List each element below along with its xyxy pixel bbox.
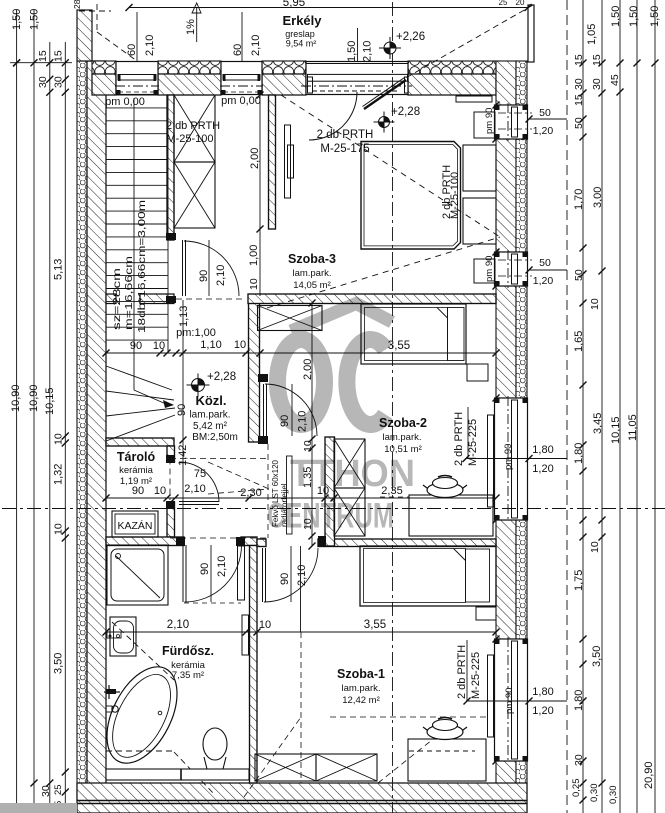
svg-text:45: 45: [609, 74, 621, 86]
svg-text:M-25-175: M-25-175: [320, 143, 369, 155]
svg-text:lam.park.: lam.park.: [341, 683, 380, 694]
svg-text:lam.park.: lam.park.: [292, 268, 331, 279]
svg-text:2 db PRTH: 2 db PRTH: [453, 412, 465, 466]
svg-text:2 db PRTH: 2 db PRTH: [456, 645, 468, 699]
svg-text:BM:2,50m: BM:2,50m: [192, 432, 238, 443]
svg-text:18db*16,66cm=3,00m: 18db*16,66cm=3,00m: [136, 200, 148, 333]
svg-text:0,30: 0,30: [608, 786, 619, 805]
svg-text:2,10: 2,10: [362, 41, 374, 62]
svg-text:2,10: 2,10: [184, 483, 205, 495]
svg-text:1,50: 1,50: [628, 6, 640, 27]
svg-text:pm 90: pm 90: [484, 108, 495, 134]
svg-text:10: 10: [302, 440, 314, 452]
svg-text:90: 90: [132, 485, 144, 497]
svg-text:15: 15: [53, 50, 65, 62]
svg-text:28: 28: [72, 0, 82, 9]
svg-text:90: 90: [279, 573, 291, 585]
svg-text:25: 25: [499, 0, 508, 7]
svg-text:60: 60: [126, 44, 138, 56]
svg-text:30: 30: [37, 76, 49, 88]
svg-text:pm 90: pm 90: [503, 444, 514, 470]
svg-text:60: 60: [232, 44, 244, 56]
svg-text:+2,26: +2,26: [396, 31, 425, 43]
svg-text:11,05: 11,05: [627, 414, 639, 441]
svg-text:9,54 m²: 9,54 m²: [286, 39, 317, 49]
svg-text:M-25-100: M-25-100: [166, 133, 213, 145]
svg-text:10: 10: [234, 339, 246, 351]
svg-text:1,50: 1,50: [346, 41, 358, 62]
svg-text:1,50: 1,50: [11, 9, 23, 30]
svg-text:5,42 m²: 5,42 m²: [193, 421, 228, 432]
svg-text:KAZÁN: KAZÁN: [117, 519, 152, 532]
svg-text:2,00: 2,00: [249, 148, 261, 169]
svg-text:50: 50: [539, 107, 551, 119]
svg-text:10,15: 10,15: [44, 387, 56, 415]
svg-text:1,50: 1,50: [610, 6, 622, 27]
svg-text:20,90: 20,90: [643, 761, 655, 789]
svg-text:1,20: 1,20: [533, 125, 554, 137]
svg-text:2,30: 2,30: [240, 487, 261, 499]
svg-text:3,45: 3,45: [592, 413, 604, 434]
svg-text:pm 0,00: pm 0,00: [105, 96, 145, 108]
svg-text:1,42: 1,42: [177, 445, 189, 466]
svg-text:pm:1,00: pm:1,00: [176, 327, 216, 339]
svg-text:lam.park.: lam.park.: [382, 432, 421, 443]
svg-text:Tároló: Tároló: [117, 450, 156, 464]
svg-text:M-25-100: M-25-100: [449, 172, 461, 219]
svg-text:90: 90: [199, 563, 211, 575]
svg-text:2,10: 2,10: [167, 619, 189, 631]
svg-text:2,10: 2,10: [250, 35, 262, 56]
svg-text:M-25-225: M-25-225: [470, 652, 482, 699]
svg-text:sz=28cm: sz=28cm: [111, 268, 123, 330]
svg-text:TTHON: TTHON: [290, 453, 415, 495]
svg-text:1,65: 1,65: [573, 331, 585, 352]
svg-text:1,75: 1,75: [573, 570, 585, 591]
svg-text:25: 25: [53, 784, 64, 795]
svg-text:5,95: 5,95: [283, 0, 305, 9]
svg-text:10: 10: [589, 298, 601, 310]
svg-text:12,42 m²: 12,42 m²: [342, 695, 380, 706]
svg-text:20: 20: [516, 0, 525, 7]
svg-text:3,00: 3,00: [592, 187, 604, 208]
svg-text:30: 30: [591, 78, 603, 90]
svg-text:1,80: 1,80: [532, 444, 553, 456]
svg-text:30: 30: [573, 78, 585, 90]
svg-text:Erkély: Erkély: [282, 13, 322, 28]
svg-text:75: 75: [194, 468, 206, 480]
svg-text:1,50: 1,50: [29, 9, 41, 30]
svg-text:Fürdősz.: Fürdősz.: [162, 644, 214, 658]
svg-text:90: 90: [130, 340, 142, 352]
svg-text:Közl.: Közl.: [195, 393, 226, 408]
svg-text:90: 90: [176, 404, 188, 416]
svg-text:2,10: 2,10: [144, 35, 156, 56]
svg-text:2 db PRTH: 2 db PRTH: [317, 129, 374, 141]
svg-text:2,10: 2,10: [215, 265, 227, 286]
svg-text:10: 10: [259, 619, 271, 631]
svg-text:3,55: 3,55: [364, 619, 386, 631]
svg-text:10,90: 10,90: [28, 384, 40, 412]
svg-text:10,15: 10,15: [610, 416, 622, 444]
svg-text:1,70: 1,70: [573, 189, 585, 210]
svg-text:1,13: 1,13: [178, 306, 190, 327]
svg-text:3,50: 3,50: [591, 646, 603, 667]
svg-text:pm 90: pm 90: [484, 256, 495, 282]
svg-text:1%: 1%: [185, 19, 197, 35]
svg-text:14,05 m²: 14,05 m²: [293, 280, 331, 291]
svg-text:10: 10: [154, 485, 166, 497]
svg-text:1,80: 1,80: [532, 686, 553, 698]
svg-text:5,13: 5,13: [53, 259, 65, 280]
svg-text:10: 10: [248, 278, 260, 290]
svg-text:30: 30: [53, 76, 65, 88]
svg-text:10,90: 10,90: [10, 384, 22, 412]
svg-text:1,00: 1,00: [248, 245, 260, 266]
svg-text:15: 15: [37, 50, 49, 62]
svg-text:7,35 m²: 7,35 m²: [172, 670, 204, 681]
svg-text:90: 90: [198, 270, 210, 282]
svg-text:15: 15: [573, 54, 585, 66]
svg-text:50: 50: [539, 257, 551, 269]
svg-text:10: 10: [589, 541, 601, 553]
svg-text:Szoba-1: Szoba-1: [337, 667, 385, 681]
svg-text:1,80: 1,80: [573, 443, 585, 464]
svg-text:3,55: 3,55: [388, 340, 410, 352]
svg-text:1,20: 1,20: [533, 275, 554, 287]
svg-text:1,32: 1,32: [53, 464, 65, 485]
svg-text:10: 10: [153, 340, 165, 352]
svg-text:m=16,66cm: m=16,66cm: [123, 256, 135, 330]
svg-text:lam.park.: lam.park.: [189, 410, 230, 421]
svg-text:3,50: 3,50: [53, 653, 65, 674]
svg-text:+2,28: +2,28: [391, 106, 420, 118]
svg-text:1,20: 1,20: [532, 705, 553, 717]
svg-text:CENTRUM: CENTRUM: [267, 497, 394, 536]
svg-text:+2,28: +2,28: [207, 371, 236, 383]
svg-text:1,05: 1,05: [586, 24, 598, 45]
svg-text:0,25: 0,25: [571, 779, 582, 798]
svg-text:1,50: 1,50: [649, 6, 661, 27]
svg-text:50: 50: [573, 269, 585, 281]
svg-text:2 db PRTH: 2 db PRTH: [166, 120, 220, 132]
svg-text:2,10: 2,10: [216, 556, 228, 577]
svg-text:15: 15: [573, 94, 585, 106]
svg-text:30: 30: [40, 785, 52, 797]
svg-text:2,10: 2,10: [296, 565, 308, 586]
svg-text:pm 0,00: pm 0,00: [221, 95, 261, 107]
svg-text:1,20: 1,20: [532, 463, 553, 475]
svg-text:greslap: greslap: [285, 29, 315, 39]
svg-text:1,10: 1,10: [200, 339, 221, 351]
svg-text:Szoba-3: Szoba-3: [288, 252, 336, 266]
svg-text:kerámia: kerámia: [119, 465, 154, 476]
